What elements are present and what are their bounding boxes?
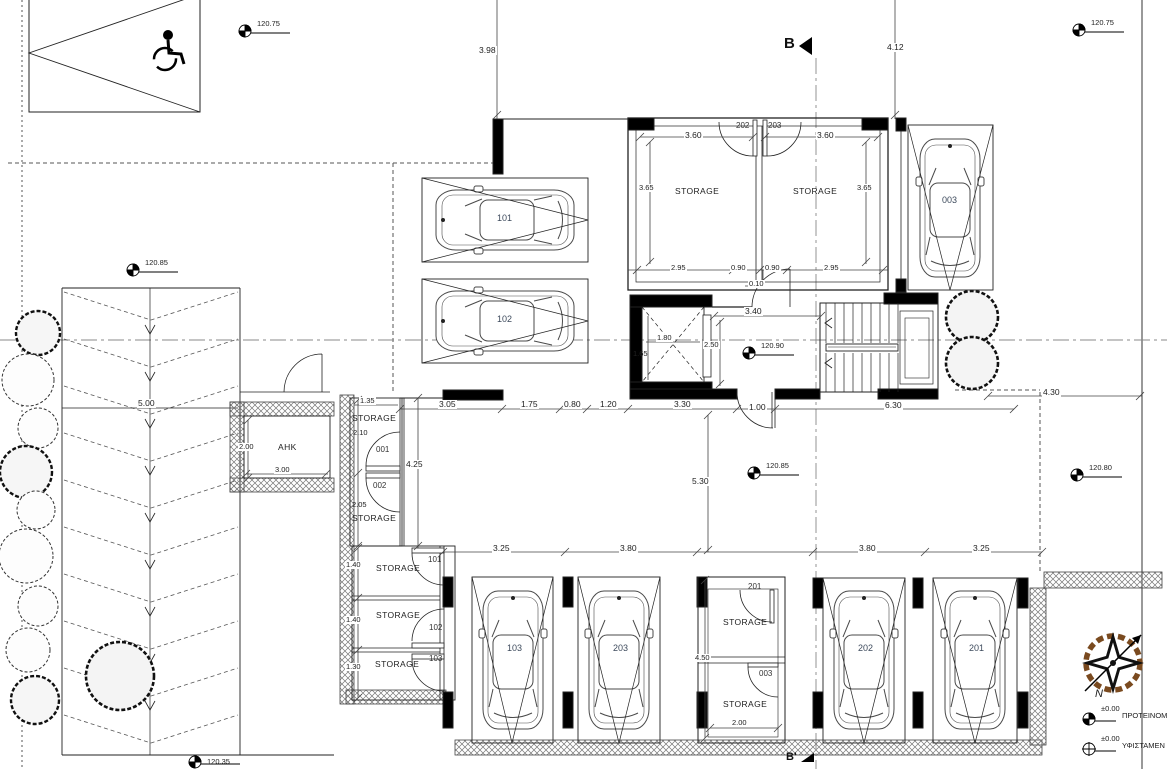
dim-label: 2.95	[823, 264, 840, 272]
room-label-storage: STORAGE	[374, 660, 420, 669]
dim-label: 4.12	[886, 43, 905, 52]
elevation-label: 120.35	[206, 758, 231, 766]
parking-label-203: 203	[612, 644, 629, 654]
legend-label-existing: ΥΦΙΣΤΑΜΕΝ	[1121, 742, 1166, 750]
parking-label-003: 003	[941, 196, 958, 206]
dim-label: 0.80	[563, 400, 582, 409]
parking-space-103	[472, 577, 553, 743]
dim-label: 1.20	[599, 400, 618, 409]
dim-label: 5.30	[691, 477, 710, 486]
dim-label: 3.65	[638, 184, 655, 192]
floorplan-drawing	[0, 0, 1167, 769]
elevation-label: 120.90	[760, 342, 785, 350]
dim-label: 4.30	[1042, 388, 1061, 397]
legend-level-existing: ±0.00	[1100, 735, 1121, 743]
dim-label: 3.05	[438, 400, 457, 409]
parking-label-102: 102	[496, 315, 513, 325]
dim-label: 3.80	[619, 544, 638, 553]
dim-label: 2.95	[670, 264, 687, 272]
room-label-ahk: AHK	[277, 443, 298, 452]
north-label: N	[1094, 688, 1104, 700]
dim-label: 3.25	[972, 544, 991, 553]
room-label-storage: STORAGE	[351, 514, 397, 523]
parking-space-003	[908, 125, 993, 290]
dim-label: 2.50	[703, 341, 720, 349]
dim-label: 1.35	[359, 397, 376, 405]
lobby	[630, 269, 820, 428]
parking-label-101: 101	[496, 214, 513, 224]
section-marker-top: B	[783, 36, 796, 53]
dim-label: 1.75	[520, 400, 539, 409]
wheelchair-icon	[154, 31, 184, 71]
room-label-storage: STORAGE	[375, 564, 421, 573]
ahk-room	[240, 354, 330, 478]
room-label-storage: STORAGE	[674, 187, 720, 196]
dim-label: 3.60	[684, 131, 703, 140]
dim-label: 5.00	[137, 399, 156, 408]
dim-label: 3.60	[816, 131, 835, 140]
room-label-storage: STORAGE	[792, 187, 838, 196]
door-tag-201: 201	[747, 583, 762, 592]
door-tag-202: 202	[735, 122, 750, 131]
dim-label: 1.80	[656, 334, 673, 342]
storage-block-top	[628, 118, 888, 290]
dim-label: 2.00	[238, 443, 255, 451]
dim-label: 3.00	[274, 466, 291, 474]
dim-label: 3.98	[478, 46, 497, 55]
dim-label: 3.30	[673, 400, 692, 409]
elevation-label: 120.80	[1088, 464, 1113, 472]
door-tag-103: 103	[428, 655, 443, 664]
room-label-storage: STORAGE	[722, 700, 768, 709]
elevation-label: 120.75	[1090, 19, 1115, 27]
legend-label-proposed: ΠΡΟΤΕΙΝΟΜ	[1121, 712, 1167, 720]
legend-level-proposed: ±0.00	[1100, 705, 1121, 713]
dim-label: 3.40	[744, 307, 763, 316]
door-tag-002: 002	[372, 482, 387, 491]
stairs	[820, 293, 938, 399]
door-tag-003: 003	[758, 670, 773, 679]
door-tag-203: 203	[767, 122, 782, 131]
dim-label: 0.90	[730, 264, 747, 272]
compass-rose	[1082, 632, 1144, 694]
dim-label: 2.05	[351, 501, 368, 509]
dim-label: 1.40	[345, 561, 362, 569]
elevation-label: 120.85	[144, 259, 169, 267]
parking-label-103: 103	[506, 644, 523, 654]
dim-label: 3.25	[492, 544, 511, 553]
parking-space-203	[578, 577, 660, 743]
dim-label: 4.50	[694, 654, 711, 662]
room-label-storage: STORAGE	[351, 414, 397, 423]
dim-label: 1.65	[632, 350, 649, 358]
door-tag-102: 102	[428, 624, 443, 633]
section-marker-bottom: B'	[785, 751, 798, 763]
elevation-label: 120.75	[256, 20, 281, 28]
elevator	[630, 295, 712, 394]
room-label-storage: STORAGE	[722, 618, 768, 627]
door-tag-101: 101	[427, 556, 442, 565]
dim-label: 2.10	[352, 429, 369, 437]
elevation-label: 120.85	[765, 462, 790, 470]
dim-label: 0.90	[764, 264, 781, 272]
dim-label: 2.00	[731, 719, 748, 727]
dim-label: 3.80	[858, 544, 877, 553]
dim-label: 4.25	[405, 460, 424, 469]
dim-label: 6.30	[884, 401, 903, 410]
parking-label-202: 202	[857, 644, 874, 654]
parking-label-201: 201	[968, 644, 985, 654]
parking-space-201	[933, 578, 1017, 743]
dim-label: 0.10	[748, 280, 765, 288]
dim-label: 1.30	[345, 663, 362, 671]
parking-space-202	[823, 578, 905, 743]
disabled-parking-space	[29, 0, 200, 112]
floor-plan-canvas: 3.98 4.12 B B' 120.75 120.75 120.85 120.…	[0, 0, 1167, 769]
dim-label: 3.65	[856, 184, 873, 192]
dim-label: 1.00	[748, 403, 767, 412]
room-label-storage: STORAGE	[375, 611, 421, 620]
dim-label: 1.40	[345, 616, 362, 624]
door-tag-001: 001	[375, 446, 390, 455]
